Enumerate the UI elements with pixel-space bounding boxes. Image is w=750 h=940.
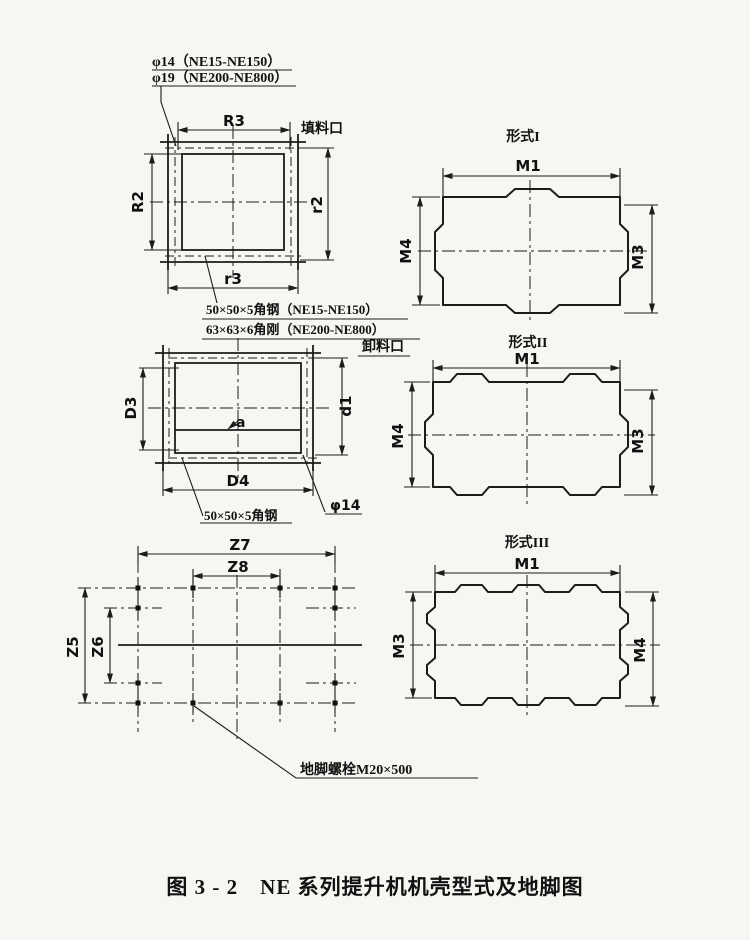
form3-dim-M4: M4 bbox=[631, 637, 649, 662]
dim-Z8: Z8 bbox=[227, 558, 248, 576]
dim-Z7: Z7 bbox=[229, 536, 250, 554]
angle-note-line2: 63×63×6角刚（NE200-NE800） bbox=[206, 322, 385, 337]
dim-R3: R3 bbox=[223, 112, 245, 130]
scanned-drawing-page: φ14（NE15-NE150） φ19（NE200-NE800） R3 填料口 … bbox=[0, 0, 750, 940]
hole-note-line1: φ14（NE15-NE150） bbox=[152, 54, 281, 70]
form3-title: 形式III bbox=[505, 534, 549, 551]
technical-drawing: φ14（NE15-NE150） φ19（NE200-NE800） R3 填料口 … bbox=[0, 0, 750, 940]
dim-D3: D3 bbox=[122, 397, 140, 420]
form2-view: 形式II M1 M4 M3 bbox=[389, 334, 658, 505]
form1-view: 形式I M1 M4 M3 bbox=[397, 128, 658, 323]
dim-a: a bbox=[236, 415, 245, 431]
form3-dim-M3: M3 bbox=[390, 633, 408, 658]
form2-dim-M4: M4 bbox=[389, 423, 407, 448]
form1-dim-M1: M1 bbox=[515, 157, 540, 175]
hole-size-note: φ14（NE15-NE150） φ19（NE200-NE800） bbox=[152, 54, 296, 146]
discharge-port-label: 卸料口 bbox=[362, 338, 404, 355]
hole-dia-label: φ14 bbox=[330, 498, 361, 514]
dim-Z6: Z6 bbox=[89, 636, 107, 657]
foundation-plan: Z7 Z8 Z5 Z6 地脚螺栓M bbox=[64, 536, 478, 778]
anchor-bolt-note: 地脚螺栓M20×500 bbox=[300, 761, 412, 778]
square-flange-view: R3 填料口 r3 R2 r2 bbox=[129, 112, 343, 294]
angle-note-line1: 50×50×5角钢（NE15-NE150） bbox=[206, 302, 378, 317]
dim-R2: R2 bbox=[129, 191, 147, 213]
dim-D4: D4 bbox=[227, 472, 250, 490]
dim-r3: r3 bbox=[224, 270, 242, 288]
form3-view: 形式III M1 M3 M4 bbox=[390, 534, 660, 716]
dim-d1: d1 bbox=[337, 395, 355, 416]
form1-title: 形式I bbox=[506, 128, 539, 145]
form1-dim-M4: M4 bbox=[397, 238, 415, 263]
dim-r2: r2 bbox=[308, 196, 326, 214]
dim-Z5: Z5 bbox=[64, 636, 82, 657]
form1-dim-M3: M3 bbox=[629, 244, 647, 269]
hole-note-line2: φ19（NE200-NE800） bbox=[152, 70, 288, 86]
leader-line bbox=[205, 256, 217, 303]
form3-dim-M1: M1 bbox=[514, 555, 539, 573]
angle-steel-note: 50×50×5角钢（NE15-NE150） 63×63×6角刚（NE200-NE… bbox=[202, 256, 420, 339]
angle-note-small: 50×50×5角钢 bbox=[204, 508, 277, 523]
form2-title: 形式II bbox=[509, 334, 548, 351]
form2-dim-M3: M3 bbox=[629, 428, 647, 453]
rect-flange-view: a 卸料口 D3 d1 D4 φ14 50×50×5角钢 bbox=[122, 338, 410, 523]
fill-port-label: 填料口 bbox=[301, 120, 343, 137]
witness-lines bbox=[139, 368, 179, 450]
figure-caption: 图 3 - 2 NE 系列提升机机壳型式及地脚图 bbox=[166, 875, 583, 899]
